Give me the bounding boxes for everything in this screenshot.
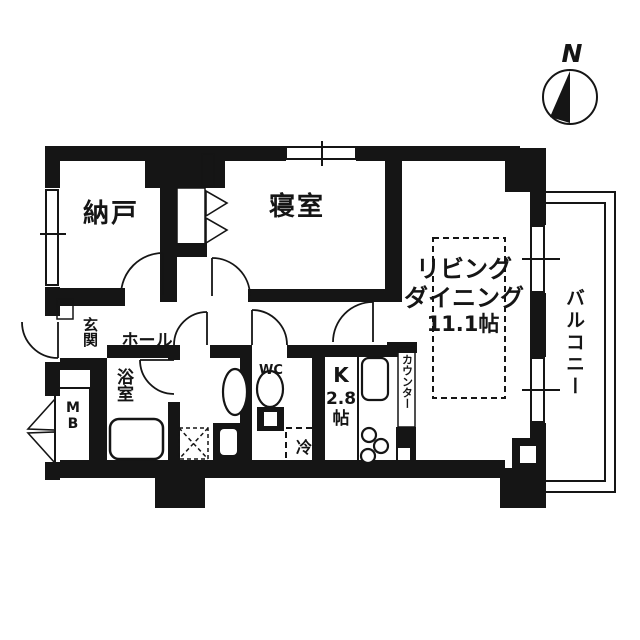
living-door-arc — [333, 302, 373, 342]
toilet-tank-lid — [264, 412, 277, 426]
bathtub — [110, 419, 163, 459]
kitchen-label-line2: 2.8 — [326, 389, 356, 409]
kitchen-label-line1: K — [333, 363, 350, 387]
closet-box — [177, 188, 205, 245]
wall-segment — [312, 345, 325, 465]
meter-box-label: MB — [65, 400, 81, 432]
living-label-line3: 11.1帖 — [427, 312, 500, 336]
stove-burner — [374, 439, 388, 453]
washroom-door-arc — [174, 312, 207, 345]
compass: N — [543, 39, 597, 124]
mb-door-icon — [28, 399, 55, 430]
room-labels: 納戸 寝室 リビング ダイニング 11.1帖 玄関 ホール 浴室 WC K 2.… — [65, 191, 524, 457]
opening — [168, 360, 180, 402]
floor-plan-page: N — [0, 0, 640, 640]
balcony: バルコニー — [546, 192, 615, 492]
kitchen-sink — [362, 358, 388, 400]
wall-segment — [45, 460, 505, 478]
bedroom-closet — [177, 188, 227, 245]
washbasin — [223, 369, 247, 415]
opening — [398, 448, 410, 460]
stove-burner — [362, 428, 376, 442]
wall-segment — [45, 146, 520, 161]
wc-label: WC — [259, 363, 283, 378]
storage-door-arc — [121, 253, 163, 295]
bedroom-label: 寝室 — [269, 191, 325, 222]
living-label-line1: リビング — [416, 255, 512, 283]
vanity-sink — [220, 429, 237, 455]
wall-pillar — [155, 478, 205, 508]
compass-needle-icon — [550, 71, 570, 123]
fridge-label: 冷 — [296, 438, 312, 457]
folding-door-icon — [206, 191, 227, 216]
opening — [520, 446, 536, 463]
storage-label: 納戸 — [83, 198, 139, 229]
hall-label: ホール — [122, 331, 173, 351]
wall-shaft — [145, 146, 225, 188]
entrance-label: 玄関 — [81, 316, 99, 348]
wall-segment — [90, 358, 107, 465]
wc-door-arc — [252, 310, 287, 345]
floor-plan-drawing: N — [0, 0, 640, 640]
mb-door-icon — [28, 432, 55, 463]
kitchen-label-line3: 帖 — [333, 408, 350, 429]
counter-label: カウンター — [401, 354, 414, 409]
folding-door-icon — [206, 218, 227, 243]
bathroom-label: 浴室 — [113, 367, 134, 402]
stove-burner — [361, 449, 375, 463]
wall-segment — [248, 289, 385, 302]
balcony-label: バルコニー — [563, 288, 585, 398]
wall-segment — [287, 345, 312, 358]
wall-pillar — [500, 468, 546, 508]
living-label-line2: ダイニング — [404, 284, 524, 312]
wall-segment — [385, 161, 402, 302]
compass-north-label: N — [562, 39, 583, 68]
bedroom-door-arc — [212, 258, 250, 296]
